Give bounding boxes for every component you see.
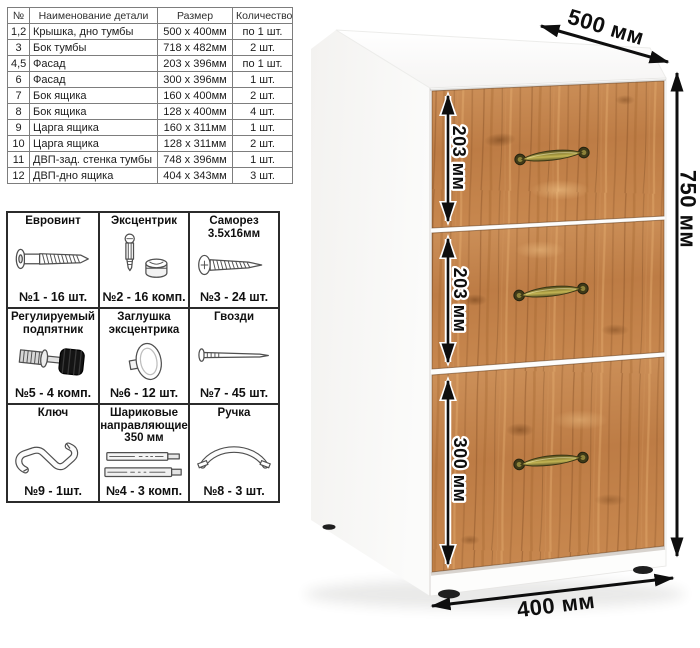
cabinet-foot-front-left [438, 590, 460, 599]
cabinet-foot-front-right [633, 566, 653, 574]
drawer-3-dimension-label: 300 мм [450, 438, 470, 503]
assembly-sheet: № Наименование детали Размер Количество … [0, 0, 700, 648]
drawer-1-dimension-label: 203 мм [449, 126, 469, 191]
cabinet-drawing: 500 мм 750 мм 400 мм 203 мм 203 мм 300 м… [0, 0, 700, 648]
drawer-2-dimension-label: 203 мм [450, 268, 470, 333]
cabinet-foot-rear-left [323, 524, 336, 530]
cabinet-side-panel [311, 30, 430, 596]
height-dimension-label: 750 мм [676, 170, 700, 248]
